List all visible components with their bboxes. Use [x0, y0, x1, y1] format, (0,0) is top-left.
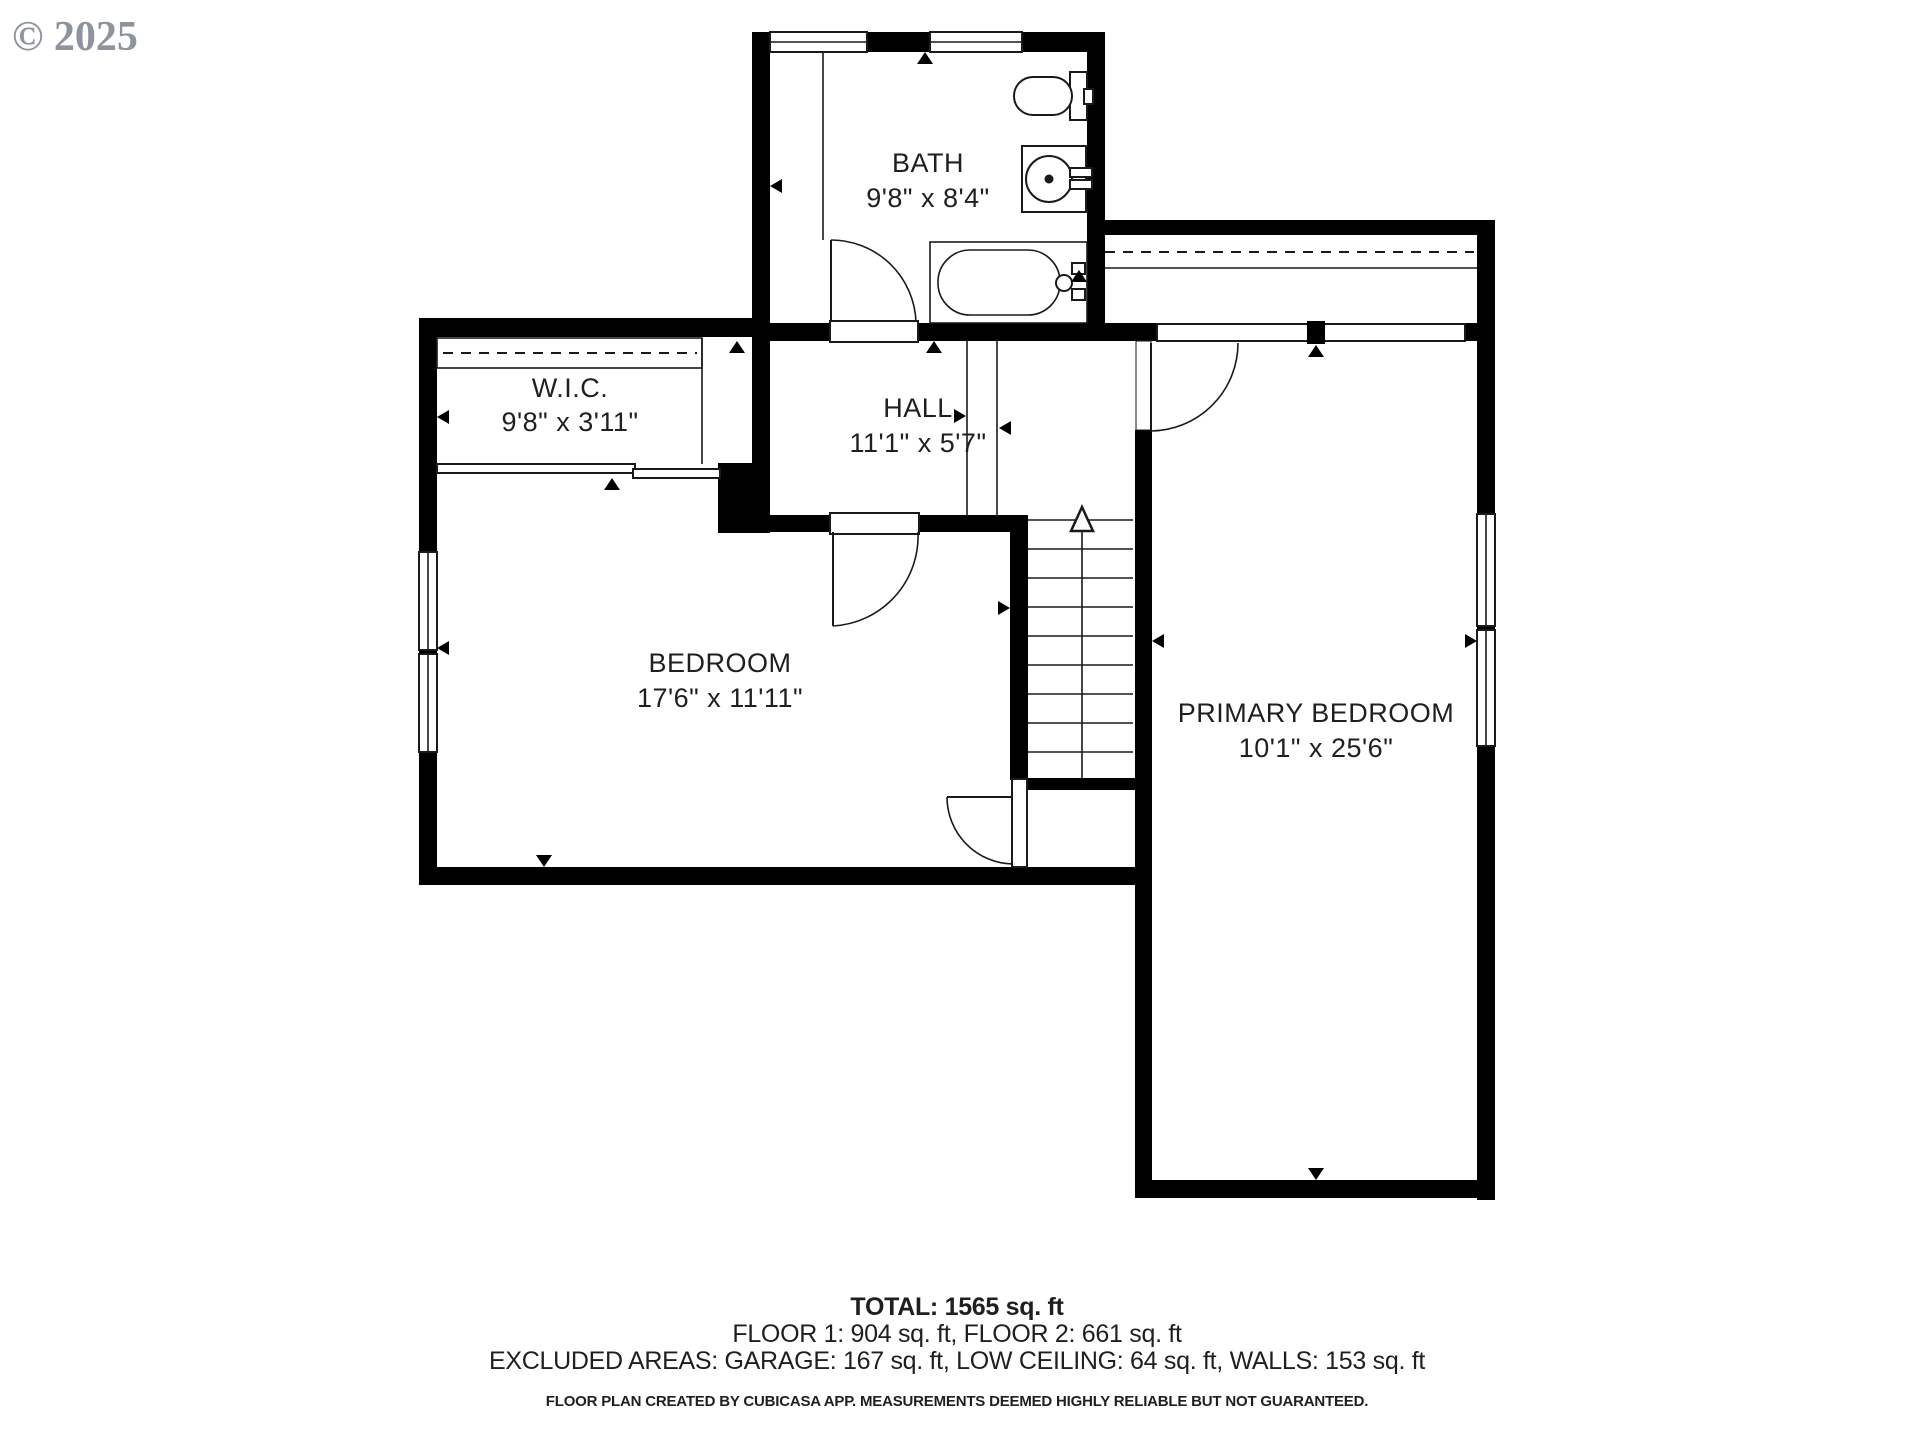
toilet-icon [1014, 72, 1093, 120]
window [1477, 630, 1495, 746]
direction-marker [999, 421, 1011, 435]
direction-marker [1308, 1168, 1324, 1180]
sliding-door [1157, 321, 1465, 344]
wall [1087, 220, 1495, 235]
wall [917, 323, 1157, 341]
direction-marker [437, 410, 449, 424]
direction-marker [954, 409, 966, 423]
floor-plan: BATH 9'8" x 8'4" W.I.C. 9'8" x 3'11" HAL… [0, 0, 1920, 1440]
summary-total: TOTAL: 1565 sq. ft [850, 1293, 1064, 1321]
room-dims-hall: 11'1" x 5'7" [849, 428, 986, 458]
room-labels: BATH 9'8" x 8'4" W.I.C. 9'8" x 3'11" HAL… [501, 148, 1454, 763]
direction-marker [998, 601, 1010, 615]
copyright-watermark: © 2025 [12, 14, 138, 60]
room-label-bath: BATH [892, 148, 964, 178]
direction-marker [917, 52, 933, 64]
door-arc [1136, 341, 1238, 431]
window [930, 32, 1022, 52]
wall [1010, 515, 1028, 780]
summary-floors: FLOOR 1: 904 sq. ft, FLOOR 2: 661 sq. ft [732, 1320, 1182, 1348]
direction-marker [604, 478, 620, 490]
staircase [1028, 507, 1133, 778]
room-dims-bath: 9'8" x 8'4" [866, 183, 990, 213]
window [770, 32, 867, 52]
direction-marker [1308, 345, 1324, 357]
direction-marker [1465, 634, 1477, 648]
door-arc [830, 240, 918, 342]
summary-excluded: EXCLUDED AREAS: GARAGE: 167 sq. ft, LOW … [489, 1347, 1425, 1375]
direction-marker [770, 179, 782, 193]
closet-rod [1105, 252, 1477, 268]
window [419, 552, 437, 650]
wall [1135, 430, 1152, 1180]
bathtub-icon [930, 242, 1087, 323]
room-label-primary-bedroom: PRIMARY BEDROOM [1178, 698, 1455, 728]
wall [419, 318, 767, 337]
window [1477, 514, 1495, 626]
wall [1465, 323, 1477, 341]
door-arc [830, 513, 919, 626]
direction-marker [926, 341, 942, 353]
door-arc [947, 779, 1027, 867]
floor-plan-page: BATH 9'8" x 8'4" W.I.C. 9'8" x 3'11" HAL… [0, 0, 1920, 1440]
sink-icon [1022, 146, 1092, 212]
wall [718, 463, 770, 533]
summary-disclaimer: FLOOR PLAN CREATED BY CUBICASA APP. MEAS… [546, 1393, 1368, 1410]
wall [419, 867, 1152, 885]
room-label-bedroom: BEDROOM [648, 648, 791, 678]
window [419, 654, 437, 752]
summary-block: TOTAL: 1565 sq. ft FLOOR 1: 904 sq. ft, … [489, 1293, 1425, 1410]
room-label-wic: W.I.C. [532, 373, 609, 403]
direction-marker [437, 641, 449, 655]
wall [752, 32, 770, 532]
direction-marker [729, 341, 745, 353]
room-dims-primary-bedroom: 10'1" x 25'6" [1239, 733, 1394, 763]
wall [1135, 1180, 1495, 1198]
room-label-hall: HALL [883, 393, 953, 423]
direction-marker [536, 855, 552, 867]
wall [770, 323, 832, 341]
stair-up-arrow-icon [1071, 507, 1093, 531]
sliding-door [437, 464, 720, 478]
wall [1028, 778, 1135, 790]
direction-marker [1152, 634, 1164, 648]
room-dims-bedroom: 17'6" x 11'11" [637, 683, 803, 713]
wall [770, 515, 832, 532]
room-dims-wic: 9'8" x 3'11" [501, 407, 638, 437]
stair-treads [1028, 520, 1133, 752]
